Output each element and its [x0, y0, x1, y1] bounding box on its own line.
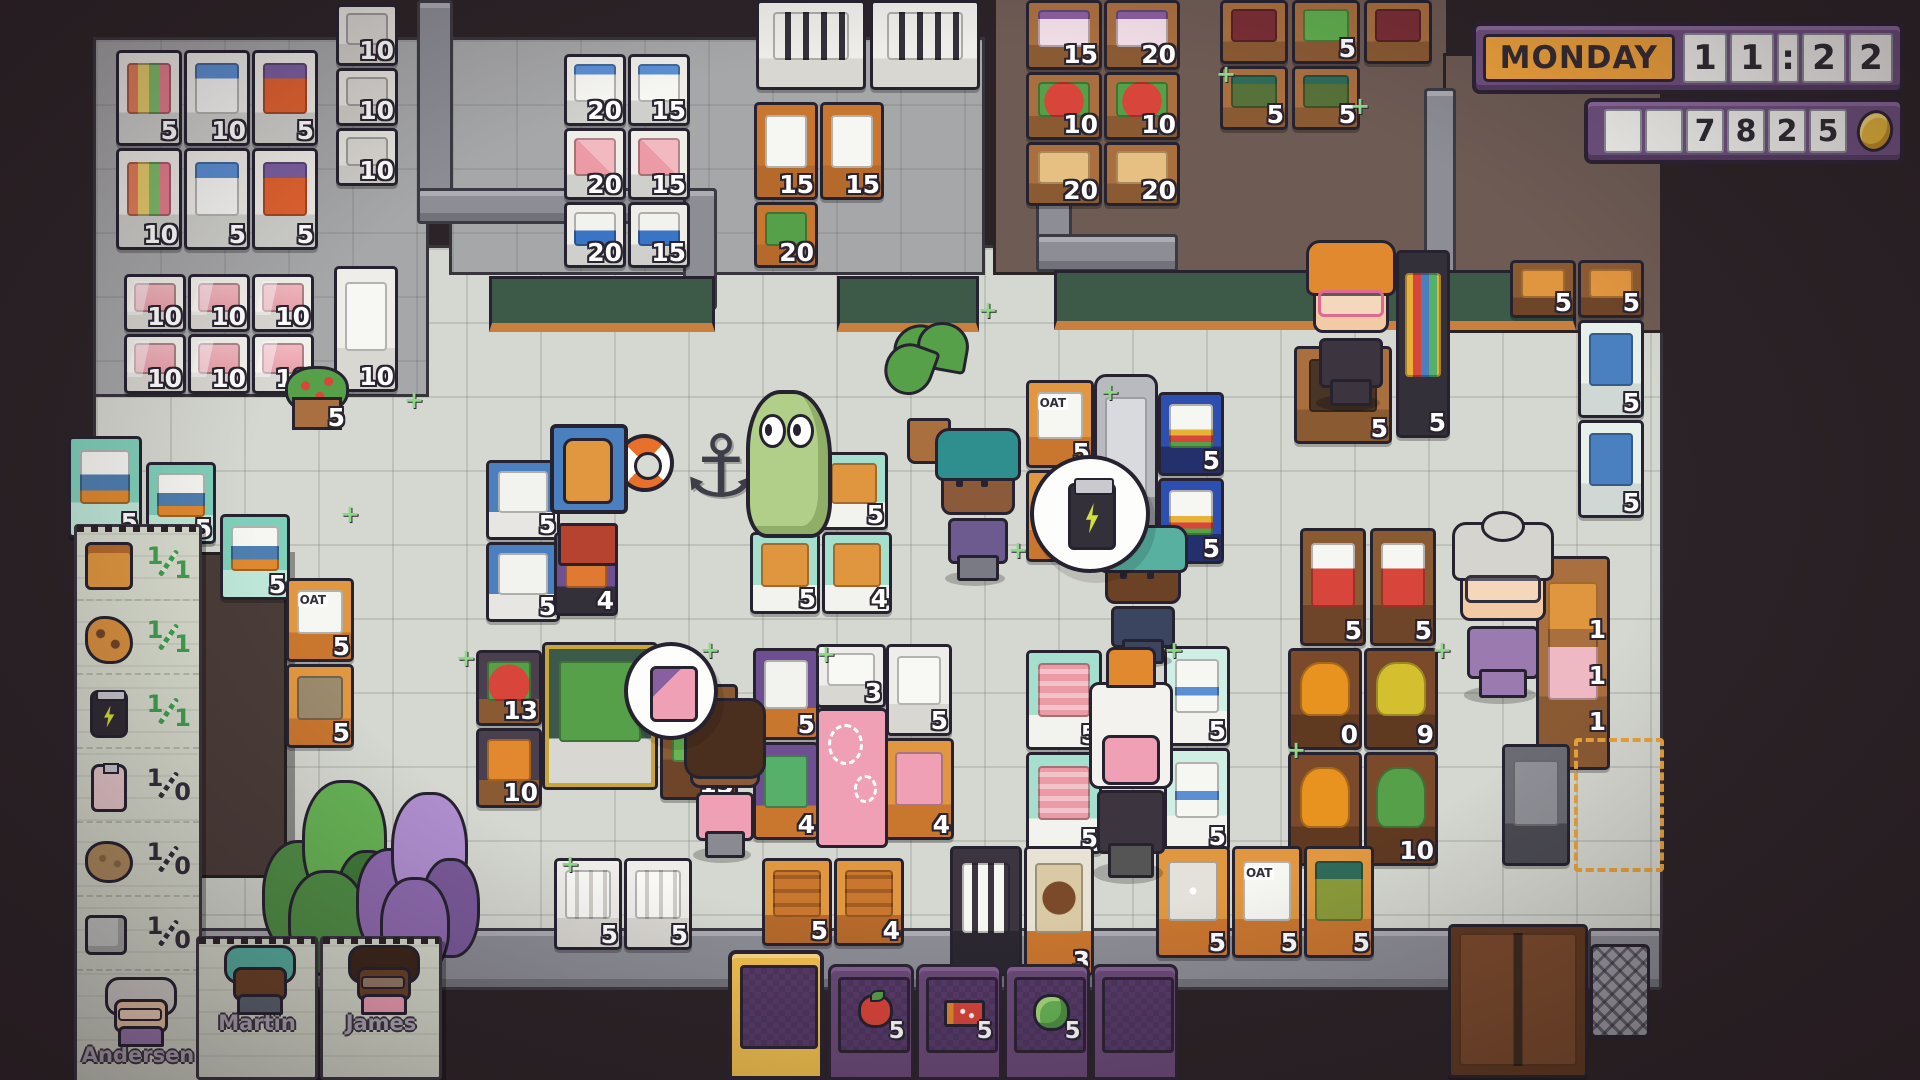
list-item-milk-bottle: 10	[77, 749, 199, 823]
oat-shelf-label: OAT	[298, 593, 328, 607]
money-digit: 2	[1768, 109, 1806, 153]
stock-count: 10	[1063, 112, 1098, 137]
stock-count: 5	[1415, 618, 1432, 643]
stock-count: 5	[269, 572, 286, 597]
hotbar-slot-2[interactable]: 5	[828, 964, 914, 1080]
dairy-freezer[interactable]: 10	[184, 50, 250, 146]
glass-fridge[interactable]: 10	[188, 274, 250, 332]
oat-bag-shelf[interactable]: OAT5	[1232, 846, 1302, 958]
stock-count: 10	[359, 38, 394, 63]
seafood-fridge[interactable]: 20	[564, 202, 626, 268]
stock-count: 20	[1141, 42, 1176, 67]
item-qty: 5	[1065, 1018, 1081, 1044]
time-digit: 2	[1802, 33, 1846, 83]
sparkle-icon: +	[700, 636, 720, 656]
potatoes-icon	[85, 838, 127, 880]
berry-plant: 5	[282, 366, 346, 430]
time-digit: 1	[1730, 33, 1774, 83]
bread-icon	[85, 542, 127, 584]
strawberry-shelf[interactable]: 10	[1104, 72, 1180, 140]
sparkle-icon: +	[816, 640, 836, 660]
sparkle-icon: +	[1350, 92, 1370, 112]
bread-wall-shelf[interactable]: 5	[1510, 260, 1576, 318]
bread-shelf[interactable]: 20	[1104, 142, 1180, 206]
stock-count: 5	[931, 708, 948, 733]
checkout-counter[interactable]	[1502, 744, 1570, 866]
clock-panel: MONDAY 11:22 7825	[1472, 22, 1904, 164]
tofu-icon	[85, 912, 127, 954]
milk-crate[interactable]: 5	[624, 858, 692, 950]
glass-fridge[interactable]: 10	[252, 274, 314, 332]
clothes-rack[interactable]: 5	[1396, 250, 1450, 438]
customer-andersen[interactable]	[1452, 522, 1548, 700]
player-character[interactable]	[935, 428, 1015, 583]
milk-bottle-icon	[85, 764, 127, 806]
bread-case[interactable]: 5	[750, 532, 820, 614]
money-digit: 8	[1727, 109, 1765, 153]
stock-count: 20	[587, 240, 622, 265]
lemonade-keg[interactable]: 9	[1364, 648, 1438, 750]
stock-count: 5	[811, 918, 828, 943]
water-fridge[interactable]: 15	[628, 54, 690, 126]
stock-count: 15	[651, 240, 686, 265]
list-item-count: 11	[147, 622, 191, 652]
sparkle-icon: +	[404, 386, 424, 406]
basket-stack	[1590, 944, 1650, 1038]
sparkle-icon: +	[1100, 378, 1120, 398]
stock-count: 10	[1399, 838, 1434, 863]
juice-keg[interactable]: 0	[1288, 648, 1362, 750]
money-display: 7825	[1604, 109, 1847, 153]
storage-crate[interactable]	[1220, 0, 1288, 64]
stock-count: 4	[883, 918, 900, 943]
stock-count: 20	[1141, 178, 1176, 203]
white-cabinet[interactable]: 10	[336, 4, 398, 66]
money-digit: 7	[1686, 109, 1724, 153]
changing-room[interactable]	[756, 0, 866, 90]
stock-count: 4	[798, 812, 815, 837]
hotbar-slot-4[interactable]: 5	[1004, 964, 1090, 1080]
stock-count: 20	[587, 172, 622, 197]
stock-count: 5	[1555, 290, 1572, 315]
white-cabinet[interactable]: 10	[336, 68, 398, 126]
hotbar-slot-3[interactable]: 5	[916, 964, 1002, 1080]
stock-count: 5	[333, 720, 350, 745]
stock-count: 5	[1209, 930, 1226, 955]
stock-count: 5	[1345, 618, 1362, 643]
stock-count: 20	[779, 240, 814, 265]
stock-count: 10	[359, 158, 394, 183]
stock-count: 0	[1341, 722, 1358, 747]
stock-count: 13	[503, 698, 538, 723]
money-digit	[1645, 109, 1683, 153]
energy-can-icon	[85, 690, 127, 732]
stock-count: 5	[161, 118, 178, 143]
potato-shelf[interactable]: 5	[286, 664, 354, 748]
stock-count: 5	[799, 586, 816, 611]
stock-count: 5	[1281, 930, 1298, 955]
stock-count: 10	[211, 366, 246, 391]
avatar-afro-glasses	[347, 945, 415, 1009]
list-item-tofu: 10	[77, 897, 199, 971]
list-item-count: 10	[147, 770, 191, 800]
glass-fridge[interactable]: 10	[188, 334, 250, 394]
poster-fridge[interactable]: 5	[68, 436, 142, 538]
avatar-andersen	[104, 977, 172, 1041]
stock-count: 5	[1623, 390, 1640, 415]
stock-count: 5	[1209, 718, 1226, 743]
cookie-icon	[85, 616, 127, 658]
time-display: 11:22	[1683, 33, 1893, 83]
energy-can-icon	[1068, 483, 1117, 550]
list-item-count: 10	[147, 844, 191, 874]
stock-count: 20	[587, 98, 622, 123]
list-item-count: 11	[147, 548, 191, 578]
stock-count: 5	[1203, 448, 1220, 473]
bust-statue	[543, 424, 627, 566]
list-item-potatoes: 10	[77, 823, 199, 897]
popsicle-freezer[interactable]: 5	[116, 50, 182, 146]
stock-count: 10	[143, 222, 178, 247]
stock-count: 4	[933, 812, 950, 837]
paper-display[interactable]: 5	[886, 644, 952, 736]
chalk-segment	[489, 276, 715, 332]
stock-count: 5	[1353, 930, 1370, 955]
stock-count: 5	[1623, 290, 1640, 315]
wall-segment	[1036, 234, 1178, 272]
sparkle-icon: +	[978, 296, 998, 316]
stock-count: 5	[867, 502, 884, 527]
white-cabinet[interactable]: 10	[336, 128, 398, 186]
snack-crate[interactable]: 5	[1300, 528, 1366, 646]
meat-fridge[interactable]: 20	[564, 128, 626, 200]
entrance-doors[interactable]	[1448, 924, 1588, 1078]
pig-display[interactable]: 4	[884, 738, 954, 840]
dairy-freezer[interactable]: 5	[184, 148, 250, 250]
cow-mascot[interactable]	[1082, 660, 1174, 880]
sparkle-icon: +	[340, 500, 360, 520]
stock-count: 5	[1203, 536, 1220, 561]
water-fridge[interactable]: 20	[564, 54, 626, 126]
oat-shelf-label: OAT	[1038, 396, 1068, 410]
stock-count: 5	[1429, 410, 1446, 435]
coin-icon	[1852, 106, 1897, 155]
stock-count: 10	[359, 364, 394, 389]
snack-crate[interactable]: 5	[1370, 528, 1436, 646]
popsicle-freezer[interactable]: 10	[116, 148, 182, 250]
green-statue	[746, 390, 832, 538]
bubble-can	[1030, 455, 1150, 573]
stock-count: 5	[601, 922, 618, 947]
stock-count: 10	[211, 304, 246, 329]
oat-shelf[interactable]: OAT5	[286, 578, 354, 662]
stock-count: 3	[865, 680, 882, 705]
stock-count: 5	[1371, 416, 1388, 441]
stock-count: 5	[1267, 102, 1284, 127]
stock-count: 15	[845, 172, 880, 197]
stock-count: 1	[1589, 617, 1606, 642]
list-item-cookie: 11	[77, 601, 199, 675]
shopping-list-panel: 111111101010Andersen	[74, 524, 202, 1080]
stock-count: 15	[651, 98, 686, 123]
glasses-icon	[1318, 290, 1384, 316]
sparkle-icon: +	[1008, 536, 1028, 556]
stock-count: 4	[597, 588, 614, 613]
stock-count: 15	[779, 172, 814, 197]
game-viewport: 5105105510101010101010101010201520152015…	[0, 0, 1920, 1080]
paper-towel-shelf[interactable]: 15	[754, 102, 818, 200]
money-plaque: 7825	[1584, 98, 1904, 164]
sparkle-icon: +	[1432, 636, 1452, 656]
sparkle-icon: +	[560, 850, 580, 870]
stock-count: 5	[297, 118, 314, 143]
glasses-icon	[1465, 575, 1540, 602]
poster-fridge[interactable]: 5	[220, 514, 290, 600]
greenjuice-keg[interactable]: 10	[1364, 752, 1438, 866]
avatar-teal-turban	[223, 945, 291, 1009]
day-time-plaque: MONDAY 11:22	[1472, 22, 1904, 94]
stock-count: 10	[1141, 112, 1176, 137]
storage-crate[interactable]	[1364, 0, 1432, 64]
meat-fridge[interactable]: 15	[628, 128, 690, 200]
customer-card-martin[interactable]: Martin	[196, 936, 318, 1080]
stock-count: 10	[211, 118, 246, 143]
time-digit: 2	[1849, 33, 1893, 83]
bread-case[interactable]: 4	[822, 532, 892, 614]
carrot-crate[interactable]: 10	[476, 728, 542, 808]
item-qty: 5	[889, 1018, 905, 1044]
sparkle-icon: +	[1286, 736, 1306, 756]
blue-cabinet[interactable]: 5	[1578, 320, 1644, 418]
stock-count: 5	[1339, 36, 1356, 61]
stock-count: 10	[147, 366, 182, 391]
cereal-fridge[interactable]: 5	[1158, 392, 1224, 476]
stock-count: 5	[1623, 490, 1640, 515]
list-item-count: 10	[147, 918, 191, 948]
pink-mat	[816, 708, 888, 848]
glass-fridge[interactable]: 10	[124, 334, 186, 394]
item-qty: 5	[977, 1018, 993, 1044]
sparkle-icon: +	[1164, 636, 1184, 656]
blue-cabinet[interactable]: 5	[1578, 420, 1644, 518]
drawer-cabinet[interactable]: 5	[762, 858, 832, 946]
plant-shelf[interactable]: 5	[1292, 0, 1360, 64]
changing-room[interactable]	[870, 0, 980, 90]
oat-bag-shelf-label: OAT	[1244, 866, 1274, 880]
glass-fridge[interactable]: 10	[124, 274, 186, 332]
list-item-energy-can: 11	[77, 675, 199, 749]
stock-count: 15	[651, 172, 686, 197]
stock-count: 20	[1063, 178, 1098, 203]
paper-towel-shelf[interactable]: 15	[820, 102, 884, 200]
sparkle-icon: +	[456, 644, 476, 664]
time-colon: :	[1777, 33, 1799, 83]
tomato-crate[interactable]: 13	[476, 650, 542, 726]
drawer-cabinet[interactable]: 4	[834, 858, 904, 946]
coffee-stand[interactable]	[950, 846, 1022, 976]
money-digit	[1604, 109, 1642, 153]
stock-count: 10	[503, 780, 538, 805]
seafood-freezer[interactable]: 5	[252, 50, 318, 146]
seafood-freezer[interactable]: 5	[252, 148, 318, 250]
hotbar-slot-5[interactable]	[1092, 964, 1178, 1080]
day-label: MONDAY	[1483, 34, 1675, 82]
strawberry-shelf[interactable]: 10	[1026, 72, 1102, 140]
list-item-bread: 11	[77, 527, 199, 601]
stock-count: 15	[1063, 42, 1098, 67]
stock-count: 1	[1589, 663, 1606, 688]
stock-count: 10	[147, 304, 182, 329]
stock-count: 5	[229, 222, 246, 247]
time-digit: 1	[1683, 33, 1727, 83]
stock-count: 5	[333, 634, 350, 659]
stock-count: 10	[359, 98, 394, 123]
milk-shelf[interactable]: 15	[1026, 0, 1102, 70]
pickle-jar-shelf[interactable]: 5	[1304, 846, 1374, 958]
hotbar-slot-1[interactable]	[728, 950, 824, 1080]
list-item-count: 11	[147, 696, 191, 726]
pickle-shelf[interactable]: 20	[754, 202, 818, 268]
stock-count: 5	[297, 222, 314, 247]
customer-card-james[interactable]: James	[320, 936, 442, 1080]
sparkle-icon: +	[1216, 60, 1236, 80]
milk-shelf[interactable]: 20	[1104, 0, 1180, 70]
stock-count: 4	[871, 586, 888, 611]
store-clerk[interactable]	[1306, 240, 1390, 408]
bread-shelf[interactable]: 20	[1026, 142, 1102, 206]
selection-box	[1574, 738, 1664, 872]
stock-count: 9	[1417, 722, 1434, 747]
stock-count: 10	[275, 304, 310, 329]
stock-count: 5	[798, 712, 815, 737]
money-digit: 5	[1809, 109, 1847, 153]
stock-count: 5	[671, 922, 688, 947]
anchor: ⚓	[682, 424, 748, 530]
bread-wall-shelf[interactable]: 5	[1578, 260, 1644, 318]
stock-count: 1	[1589, 709, 1606, 734]
seafood-fridge[interactable]: 15	[628, 202, 690, 268]
pink-product-icon	[650, 666, 697, 722]
